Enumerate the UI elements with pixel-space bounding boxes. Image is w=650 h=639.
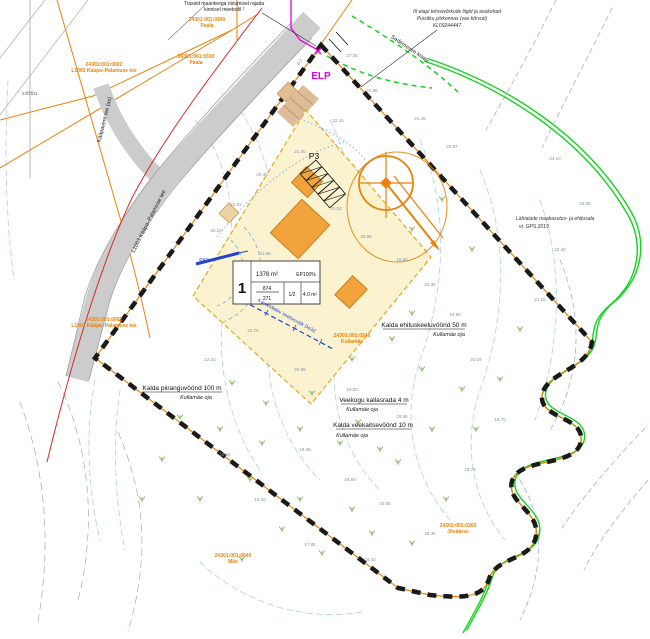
zone-ehituskeeld-sub: Kullamäe oja [433, 332, 465, 338]
grass-symbol [217, 427, 223, 433]
spot-height: 21.88 [259, 251, 271, 256]
grass-symbol [429, 427, 435, 433]
plot-ep-value: EP100% [296, 272, 316, 278]
zone-kallasrada-label: Veekogu kallasrada 4 m [339, 397, 408, 404]
dim-07: 0.7 [296, 58, 304, 66]
label-p3: P3 [309, 151, 320, 161]
grass-symbol [443, 497, 449, 503]
spot-height: 20.18 [470, 357, 482, 362]
label-pk3: PK3 [199, 258, 209, 264]
zone-piirang-sub: Kullamäe oja [180, 395, 212, 401]
cad-kullamae-name: Kullamäe [341, 339, 363, 345]
note-adjacent-line2: vt. GPS.2019 [519, 224, 549, 230]
spot-height: 22.40 [554, 247, 566, 252]
cad-paala-1-name: Paala [200, 23, 213, 29]
grass-symbol [297, 427, 303, 433]
spot-height: 20.66 [360, 234, 372, 239]
spot-height: 21.75 [247, 328, 259, 333]
grass-symbol [319, 551, 325, 557]
spot-height: 21.15 [534, 297, 546, 302]
grass-symbol [459, 387, 465, 393]
spot-height: 23.05 [579, 201, 591, 206]
zone-veekaitse-sub: Kullamäe oja [336, 433, 368, 439]
grass-symbol [409, 311, 415, 317]
contour-line [115, 390, 125, 550]
zone-veekaitse-label: Kalda veekaitsevöönd 10 m [333, 422, 413, 429]
grass-symbol [473, 427, 479, 433]
grass-symbol [177, 415, 183, 421]
spot-height: 17.85 [304, 542, 316, 547]
note-utilities-line3: KL09244447 [433, 23, 462, 29]
contour-line [0, 0, 45, 58]
grass-symbol [409, 541, 415, 547]
spot-height: 21.62 [230, 202, 242, 207]
plot-floors: 1/2 [289, 292, 296, 298]
grass-symbol [349, 357, 355, 363]
spot-height: 21.96 [366, 88, 378, 93]
spot-height: 19.20 [346, 387, 358, 392]
spot-height: 24.10 [549, 156, 561, 161]
spot-height: 22.15 [332, 118, 344, 123]
grass-symbol [337, 441, 343, 447]
spot-height: 20.87 [446, 144, 458, 149]
grass-symbol [279, 527, 285, 533]
cad-joeaarse-name: Jõeäärse [447, 529, 469, 535]
plot-table: 1 1378 m² EP100% 874 271 1/2 4.0 m² [233, 261, 320, 304]
plot-number: 1 [238, 280, 246, 297]
contour-line [550, 260, 576, 430]
ditch-sademevee: Sademevee kraav [390, 34, 430, 64]
grass-symbol [263, 401, 269, 407]
spot-height: 18.75 [464, 467, 476, 472]
contour-line [200, 562, 362, 615]
plot-frac-top: 874 [263, 286, 272, 292]
grass-symbol [369, 531, 375, 537]
contour-line [542, 8, 612, 148]
grass-symbol [419, 367, 425, 373]
grass-symbol [497, 377, 503, 383]
grass-symbol [409, 227, 415, 233]
spot-height: 21.45 [414, 116, 426, 121]
grass-symbol [377, 447, 383, 453]
grass-symbol [247, 477, 253, 483]
spot-height: 20.55 [379, 501, 391, 506]
grass-symbol [297, 497, 303, 503]
spot-height: 20.12 [210, 228, 222, 233]
cad-road-top-name: L1003 Kääpa–Palamuse tee [71, 68, 137, 74]
spot-height: 20.45 [256, 172, 268, 177]
spot-height: 19.85 [396, 257, 408, 262]
dim-tick [329, 32, 348, 52]
spot-height: 19.56 [449, 312, 461, 317]
cadastral-line [321, 0, 352, 44]
grass-symbol [259, 441, 265, 447]
cad-paala-2-name: Paala [189, 60, 202, 66]
contour-line [20, 402, 45, 622]
spot-height: 19.35 [424, 531, 436, 536]
zone-ehituskeeld-label: Kalda ehituskeeluvöönd 50 m [381, 322, 466, 329]
grass-symbol [197, 497, 203, 503]
stream-bank [428, 59, 641, 631]
spot-height: 20.30 [424, 282, 436, 287]
grass-symbol [229, 381, 235, 387]
spot-height: 18.42 [364, 557, 376, 562]
spot-height: 19.45 [299, 447, 311, 452]
grass-symbol [139, 497, 145, 503]
grass-symbol [517, 327, 523, 333]
spot-height: 21.30 [294, 149, 306, 154]
label-elp: ELP [311, 71, 331, 82]
spot-height: 19.02 [219, 452, 231, 457]
spot-height: 18.60 [344, 477, 356, 482]
contour-line [584, 480, 648, 570]
plot-height: 4.0 m² [303, 292, 318, 298]
contour-line [58, 382, 88, 600]
contour-line [6, 80, 14, 280]
grass-symbol [349, 507, 355, 513]
spot-height: 19.70 [494, 417, 506, 422]
spot-height: 21.02 [330, 206, 342, 211]
grass-symbol [389, 337, 395, 343]
plot-area-value: 1378 m² [256, 272, 278, 278]
spot-height: 20.95 [294, 367, 306, 372]
zone-kallasrada-sub: Kullamäe oja [346, 407, 378, 413]
note-crossing-line2: kinnisel meetodil ! [204, 7, 244, 13]
spot-height: 18.20 [254, 497, 266, 502]
spot-height: 22.31 [204, 357, 216, 362]
cad-mae-name: Mäe [228, 559, 238, 565]
spot-height: 27.35 [346, 53, 358, 58]
contour-line [486, 0, 556, 130]
note-adjacent-line1: Lähialade maakasutus- ja ehitusala [516, 216, 595, 222]
map-canvas: 1 1378 m² EP100% 874 271 1/2 4.0 m² 27.3… [0, 0, 650, 639]
cad-road-mid-name: L1003 Kääpa–Palamuse tee [71, 323, 137, 329]
contour-line [89, 380, 100, 540]
grass-symbol [395, 460, 401, 466]
note-utilities-line2: Puistiku piirkonnas (vas kõrvuti) [417, 16, 488, 22]
grass-symbol [469, 247, 475, 253]
zone-piirang-label: Kalda piiranguvöönd 100 m [142, 385, 221, 392]
contour-line [0, 0, 88, 115]
grass-symbol [439, 197, 445, 203]
spot-height: 18.95 [396, 414, 408, 419]
note-utilities-line1: III etapi tehnovõrkude liigid ja asukoha… [413, 9, 501, 15]
grass-symbol [159, 457, 165, 463]
contour-line [562, 428, 645, 528]
site-plan-map: 1 1378 m² EP100% 874 271 1/2 4.0 m² 27.3… [0, 0, 650, 639]
survey-ref: 24/1511 [22, 91, 38, 96]
